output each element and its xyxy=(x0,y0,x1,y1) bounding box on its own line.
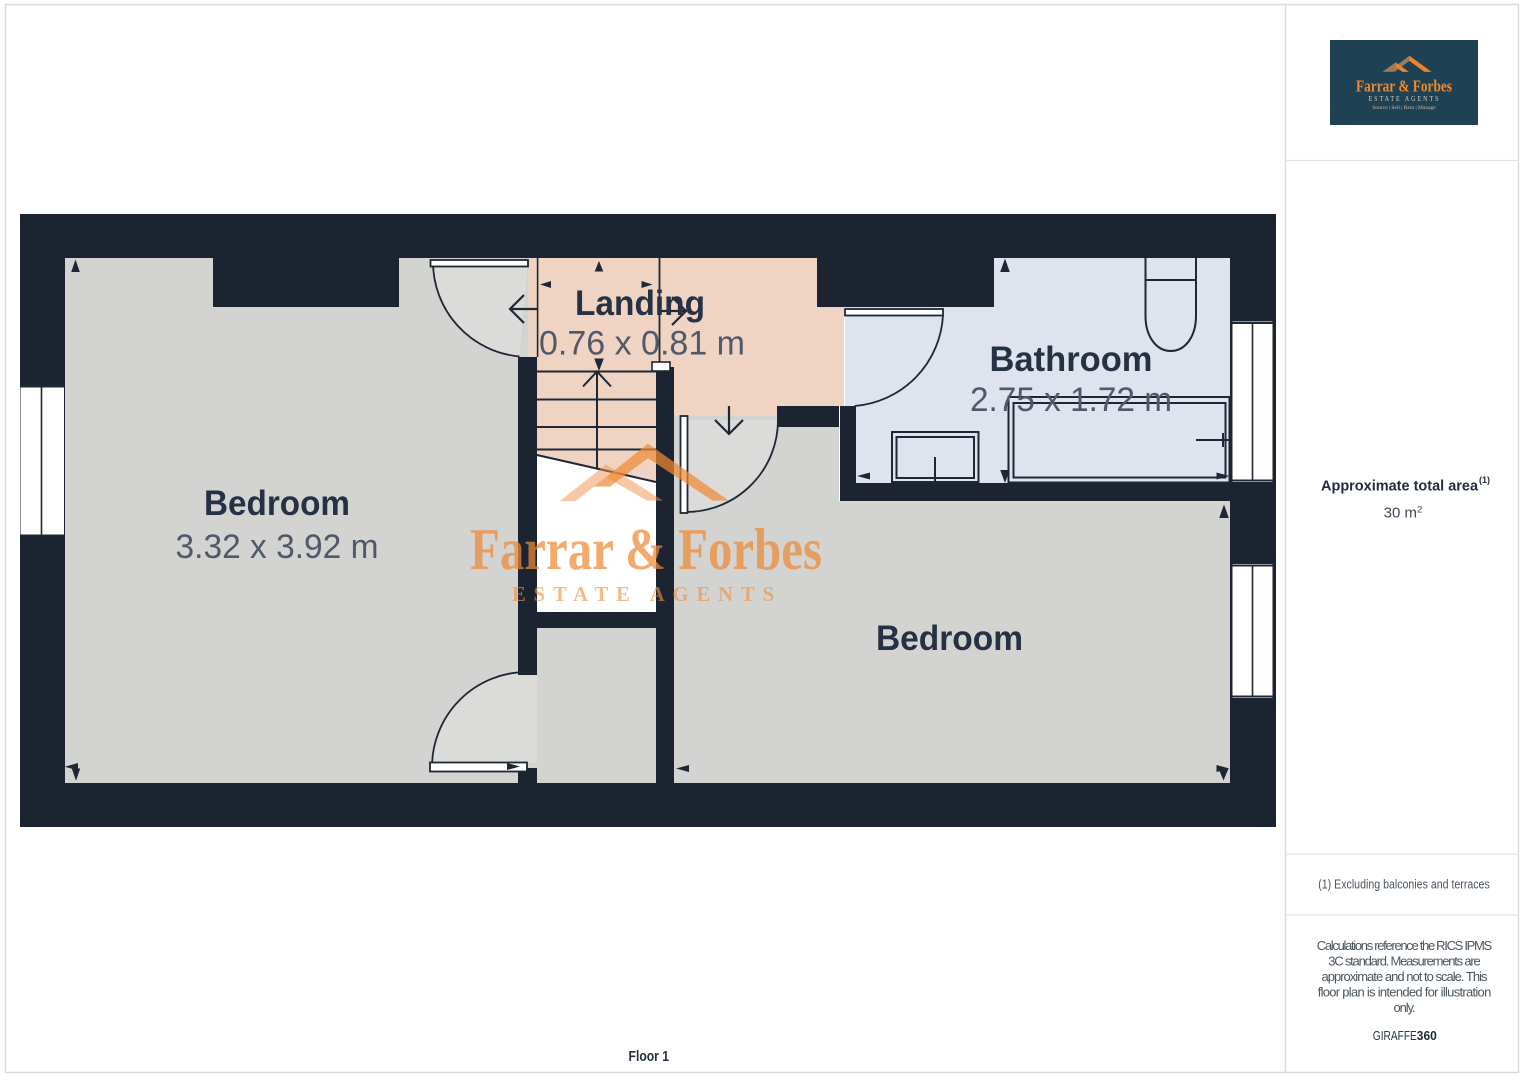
svg-text:(1): (1) xyxy=(1479,475,1490,485)
svg-text:Bedroom: Bedroom xyxy=(876,619,1023,658)
svg-text:ESTATE AGENTS: ESTATE AGENTS xyxy=(1369,95,1441,103)
svg-text:Farrar & Forbes: Farrar & Forbes xyxy=(1356,77,1452,96)
svg-text:Calculations reference the RIC: Calculations reference the RICS IPMS xyxy=(1317,938,1493,953)
svg-text:2.75 x 1.72 m: 2.75 x 1.72 m xyxy=(970,381,1172,419)
svg-text:Landing: Landing xyxy=(575,284,705,323)
svg-text:approximate and not to scale.: approximate and not to scale. This xyxy=(1321,969,1488,984)
svg-text:Farrar & Forbes: Farrar & Forbes xyxy=(470,516,822,582)
svg-text:Source | Sell | Rent | Manage: Source | Sell | Rent | Manage xyxy=(1372,105,1436,111)
svg-text:floor plan is intended for ill: floor plan is intended for illustration xyxy=(1318,984,1492,999)
svg-text:ESTATE AGENTS: ESTATE AGENTS xyxy=(512,582,782,606)
svg-text:Approximate total area: Approximate total area xyxy=(1321,477,1479,494)
svg-text:Floor 1: Floor 1 xyxy=(629,1049,670,1065)
svg-text:Bedroom: Bedroom xyxy=(204,484,350,523)
svg-text:(1) Excluding balconies and te: (1) Excluding balconies and terraces xyxy=(1318,877,1490,892)
svg-text:GIRAFFE: GIRAFFE xyxy=(1373,1028,1417,1043)
svg-text:3C standard. Measurements are: 3C standard. Measurements are xyxy=(1328,954,1480,969)
svg-text:360: 360 xyxy=(1417,1028,1437,1043)
svg-text:30 m2: 30 m2 xyxy=(1384,505,1423,522)
svg-text:only.: only. xyxy=(1394,1000,1416,1015)
svg-text:Bathroom: Bathroom xyxy=(990,340,1153,379)
svg-text:0.76 x 0.81 m: 0.76 x 0.81 m xyxy=(539,325,745,363)
svg-text:3.32 x 3.92 m: 3.32 x 3.92 m xyxy=(176,528,379,566)
